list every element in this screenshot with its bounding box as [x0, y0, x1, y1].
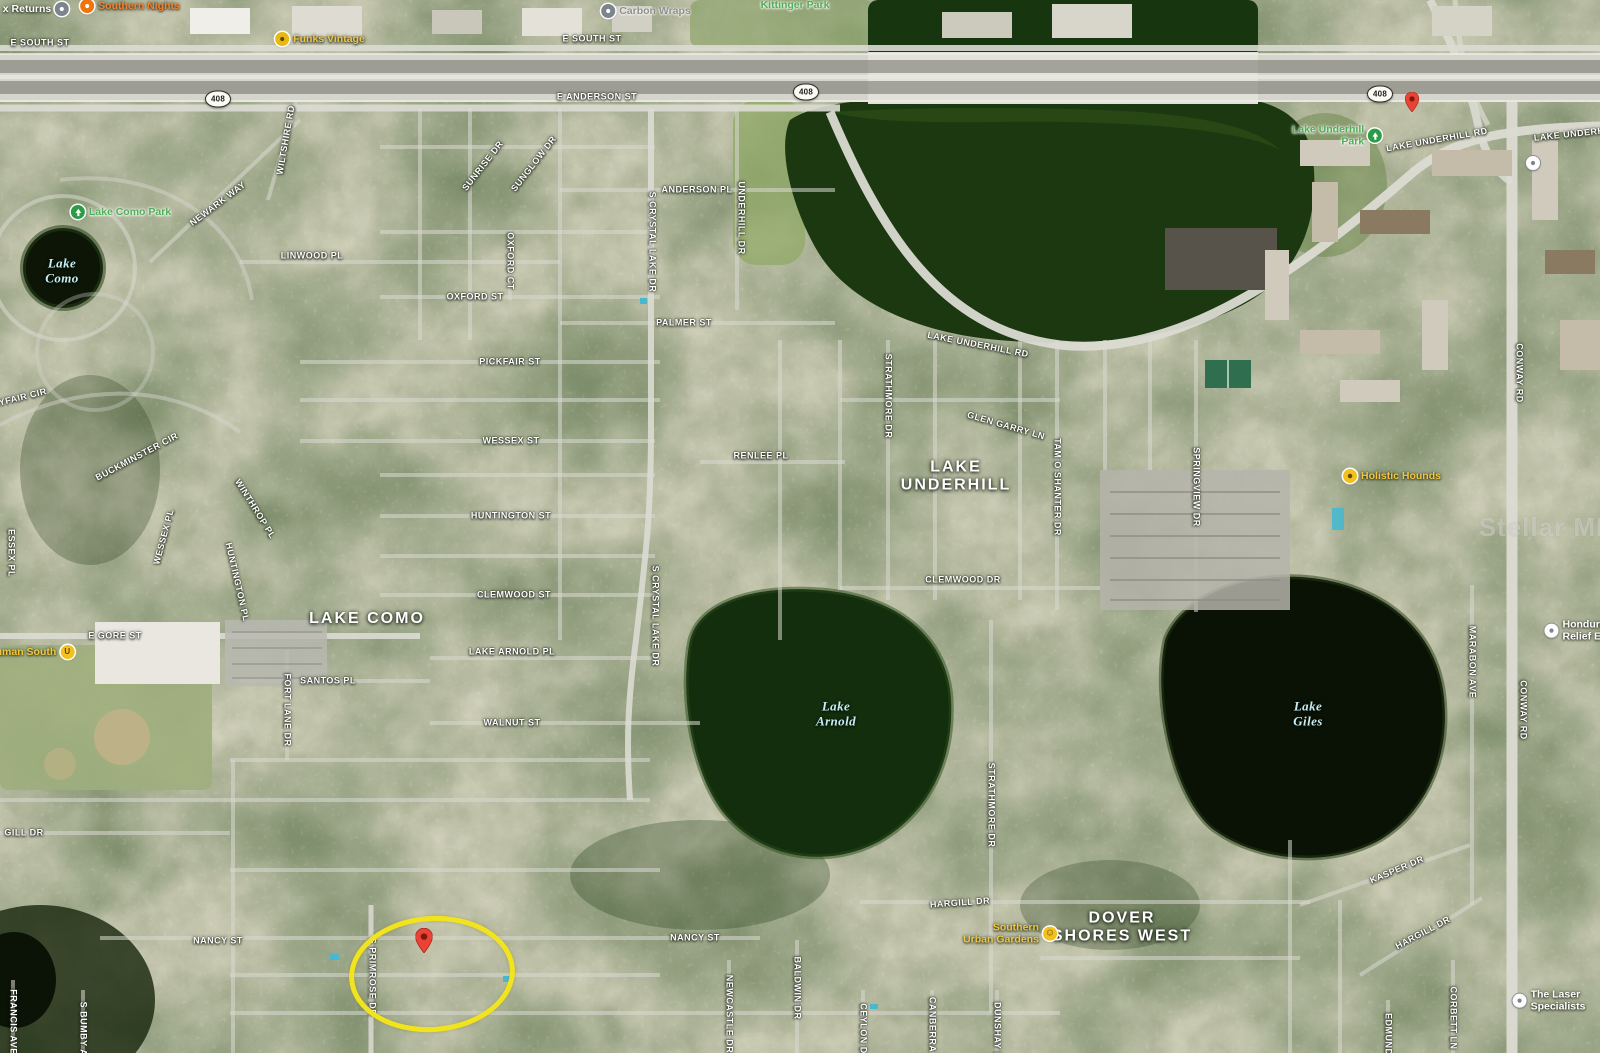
highlight-ellipse — [345, 910, 519, 1037]
watermark: Stellar MLS — [1479, 514, 1600, 540]
lake-underhill-park-pin[interactable] — [1405, 92, 1419, 117]
annotation-layer: Stellar MLS — [0, 0, 1600, 1053]
satellite-map-view[interactable]: E SOUTH STE SOUTH STE ANDERSON STLAKE UN… — [0, 0, 1600, 1053]
